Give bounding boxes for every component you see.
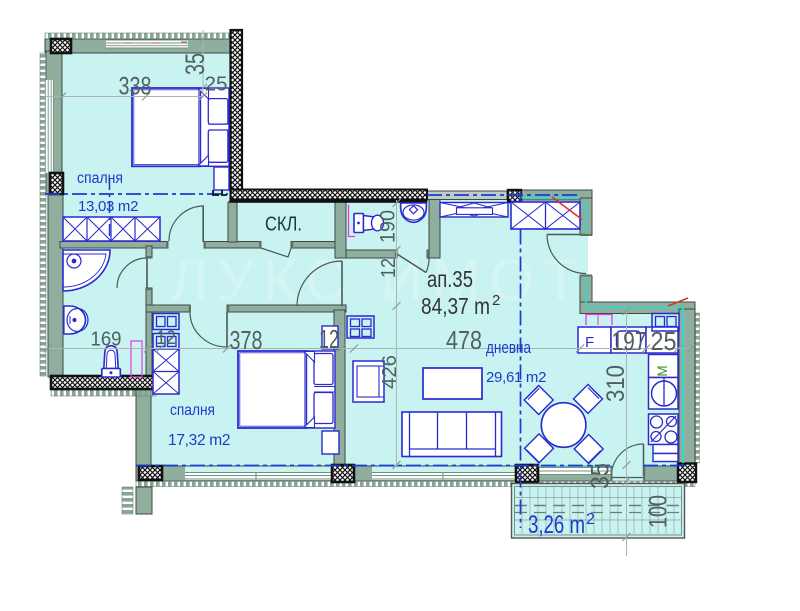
svg-text:13,03 m2: 13,03 m2 — [78, 198, 138, 215]
svg-text:190: 190 — [377, 210, 400, 243]
svg-text:169: 169 — [91, 329, 122, 351]
svg-text:35: 35 — [587, 463, 615, 489]
svg-text:12: 12 — [319, 324, 339, 354]
svg-text:12: 12 — [378, 258, 400, 278]
svg-text:25: 25 — [651, 326, 677, 356]
svg-text:378: 378 — [230, 325, 263, 355]
svg-text:спалня: спалня — [170, 402, 215, 419]
svg-text:29,61 m2: 29,61 m2 — [486, 369, 546, 386]
svg-text:2: 2 — [586, 511, 595, 528]
svg-text:2: 2 — [492, 292, 500, 309]
svg-text:3,26 m: 3,26 m — [528, 511, 585, 539]
svg-text:М: М — [655, 365, 670, 376]
svg-text:35: 35 — [180, 53, 210, 75]
svg-text:дневна: дневна — [486, 339, 532, 357]
svg-text:478: 478 — [446, 325, 482, 355]
svg-text:426: 426 — [379, 355, 401, 389]
svg-text:84,37 m: 84,37 m — [421, 293, 490, 319]
svg-text:СКЛ.: СКЛ. — [265, 213, 302, 236]
svg-text:25: 25 — [205, 74, 228, 96]
svg-text:ап.35: ап.35 — [427, 266, 473, 292]
svg-text:17,32 m2: 17,32 m2 — [168, 432, 230, 449]
svg-text:338: 338 — [119, 73, 152, 101]
svg-text:12: 12 — [156, 328, 176, 349]
svg-text:310: 310 — [602, 365, 630, 402]
svg-text:F: F — [585, 334, 594, 351]
svg-text:100: 100 — [645, 495, 673, 528]
svg-text:197: 197 — [612, 326, 647, 356]
svg-text:спалня: спалня — [77, 170, 123, 187]
